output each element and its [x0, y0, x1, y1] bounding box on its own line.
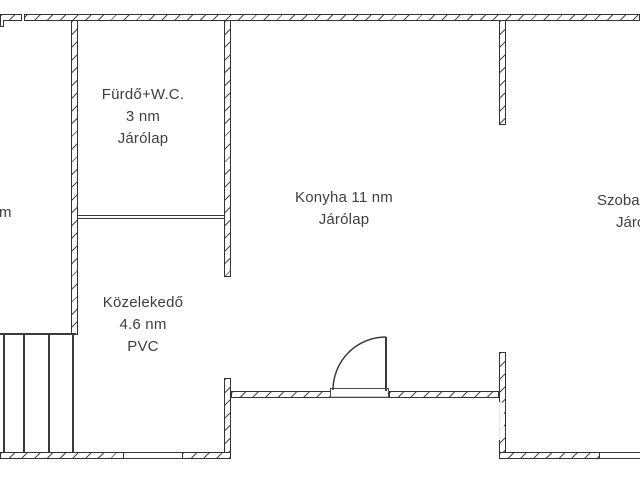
room-label-line: 3 nm: [63, 106, 223, 128]
window-bottom-left: [124, 452, 182, 459]
floor-plan: m Fürdő+W.C. 3 nm Járólap Konyha 11 nm J…: [0, 0, 640, 480]
room-label-line: Konyha 11 nm: [264, 187, 424, 209]
wall-hallway-right-lower: [224, 378, 231, 459]
wall-stub-left-edge: [0, 20, 4, 27]
wall-bathroom-kitchen: [224, 20, 231, 277]
wall-bottom-left-a: [0, 452, 124, 459]
wall-joint-top-left: [21, 14, 25, 21]
stair-tread-line: [48, 334, 50, 452]
wall-stub-kitchen-szoba: [499, 20, 506, 125]
wall-top: [0, 14, 640, 21]
room-label-line: Közelekedő: [63, 292, 223, 314]
room-label-konyha: Konyha 11 nm Járólap: [264, 187, 424, 231]
stair-tread-line: [3, 334, 5, 452]
room-label-szoba-line1: Szoba: [597, 190, 640, 212]
room-label-szoba-line2: Járó: [616, 212, 640, 234]
door-swing-arc: [330, 334, 390, 394]
partition-bathroom-bottom: [78, 215, 224, 219]
room-label-line: Járólap: [63, 128, 223, 150]
watermark-artifact: [495, 402, 504, 440]
room-label-kozlekedo: Közelekedő 4.6 nm PVC: [63, 292, 223, 358]
room-label-left-partial: m: [0, 202, 12, 224]
stair-tread-line: [23, 334, 25, 452]
wall-bottom-right: [499, 452, 600, 459]
room-label-furdo: Fürdő+W.C. 3 nm Járólap: [63, 84, 223, 150]
room-label-line: Járólap: [264, 209, 424, 231]
wall-hallway-bottom-left: [231, 391, 331, 398]
wall-bottom-left-b: [182, 452, 231, 459]
wall-bathroom-left: [71, 20, 78, 335]
room-label-line: PVC: [63, 336, 223, 358]
wall-hallway-bottom-right: [389, 391, 499, 398]
window-bottom-right: [600, 452, 640, 459]
door-leaf: [385, 337, 387, 391]
room-label-line: 4.6 nm: [63, 314, 223, 336]
room-label-line: Fürdő+W.C.: [63, 84, 223, 106]
